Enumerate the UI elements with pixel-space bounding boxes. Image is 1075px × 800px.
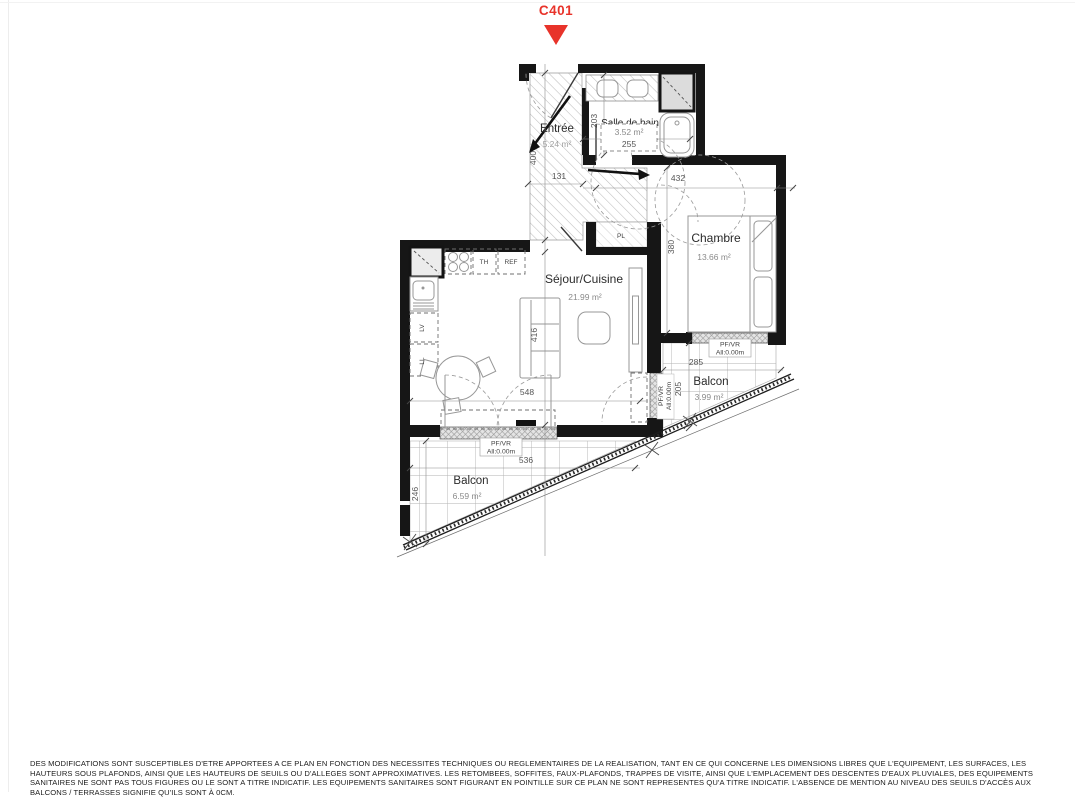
window-tag-rotated-east: PF/VR All:0.00m [657, 374, 674, 419]
area-label-bain: 3.52 m² [615, 127, 644, 137]
tag-ref: REF [505, 259, 518, 266]
room-label-chambre: Chambre [691, 231, 741, 245]
sofa [520, 298, 560, 378]
window-sill-east: All:0.00m [716, 350, 745, 357]
dim-bain-width: 255 [622, 139, 636, 149]
coffee-table [578, 312, 610, 344]
dim-sejour-depth: 416 [529, 328, 539, 342]
balcony-door-threshold [441, 410, 555, 429]
room-label-balcon-east: Balcon [693, 376, 728, 388]
room-label-sejour: Séjour/Cuisine [545, 272, 623, 286]
disclaimer-line-4: BALCONS / TERRASSES SIGNIFIE QU'ILS SONT… [30, 788, 1060, 798]
window-sill-south: All:0.00m [487, 449, 516, 456]
unit-marker-label: C401 [539, 3, 573, 18]
room-label-entree: Entrée [540, 123, 574, 135]
area-label-balcon-south: 6.59 m² [453, 491, 482, 501]
tv-unit [629, 268, 642, 372]
dim-balcon-east-width: 285 [689, 357, 703, 367]
page-top-edge-line [0, 2, 1075, 3]
floorplan-page: C401 [0, 0, 1075, 800]
dim-chambre-width: 432 [671, 173, 685, 183]
window-type-south: PF/VR [491, 441, 511, 448]
threshold-mark [516, 420, 536, 426]
disclaimer: DES MODIFICATIONS SONT SUSCEPTIBLES D'ET… [30, 759, 1060, 797]
dim-balcon-east-depth: 205 [673, 382, 683, 396]
dining-table [436, 356, 480, 400]
disclaimer-line-2: HAUTEURS SOUS PLAFONDS, AINSI QUE LES HA… [30, 769, 1060, 779]
dim-bain-depth: 203 [589, 114, 599, 128]
window-type-east: PF/VR [720, 342, 740, 349]
area-label-balcon-east: 3.99 m² [695, 392, 724, 402]
sink-left [597, 80, 618, 97]
kitchen-appliances [410, 247, 525, 376]
tag-th: TH [480, 259, 489, 266]
tag-placard: PL [617, 233, 625, 240]
balcony-east-door-box [631, 373, 647, 422]
area-label-chambre: 13.66 m² [697, 252, 731, 262]
area-label-sejour: 21.99 m² [568, 292, 602, 302]
tag-ll: LL [419, 357, 426, 365]
unit-pointer-triangle-icon [544, 25, 568, 45]
unit-marker: C401 [539, 3, 573, 45]
dim-balcon-south-width: 536 [519, 455, 533, 465]
room-label-balcon-south: Balcon [453, 475, 488, 487]
page-edge-line [8, 0, 9, 792]
disclaimer-line-3: SANITAIRES NE SONT PAS TOUS FIGURES OU L… [30, 778, 1060, 788]
floor-plan-svg: C401 [0, 0, 1075, 800]
area-label-entree: 5.24 m² [543, 139, 572, 149]
tag-lv: LV [419, 324, 426, 332]
window-type-east-rot: PF/VR [658, 386, 665, 406]
dim-chambre-depth: 380 [666, 240, 676, 254]
disclaimer-line-1: DES MODIFICATIONS SONT SUSCEPTIBLES D'ET… [30, 759, 1060, 769]
window-sill-east-rot: All:0.00m [666, 382, 673, 411]
dim-balcon-south-depth: 246 [410, 487, 420, 501]
dim-entree-length: 400 [528, 151, 538, 165]
sink-right [627, 80, 648, 97]
dim-sejour-width: 548 [520, 387, 534, 397]
dim-entree-width: 131 [552, 171, 566, 181]
